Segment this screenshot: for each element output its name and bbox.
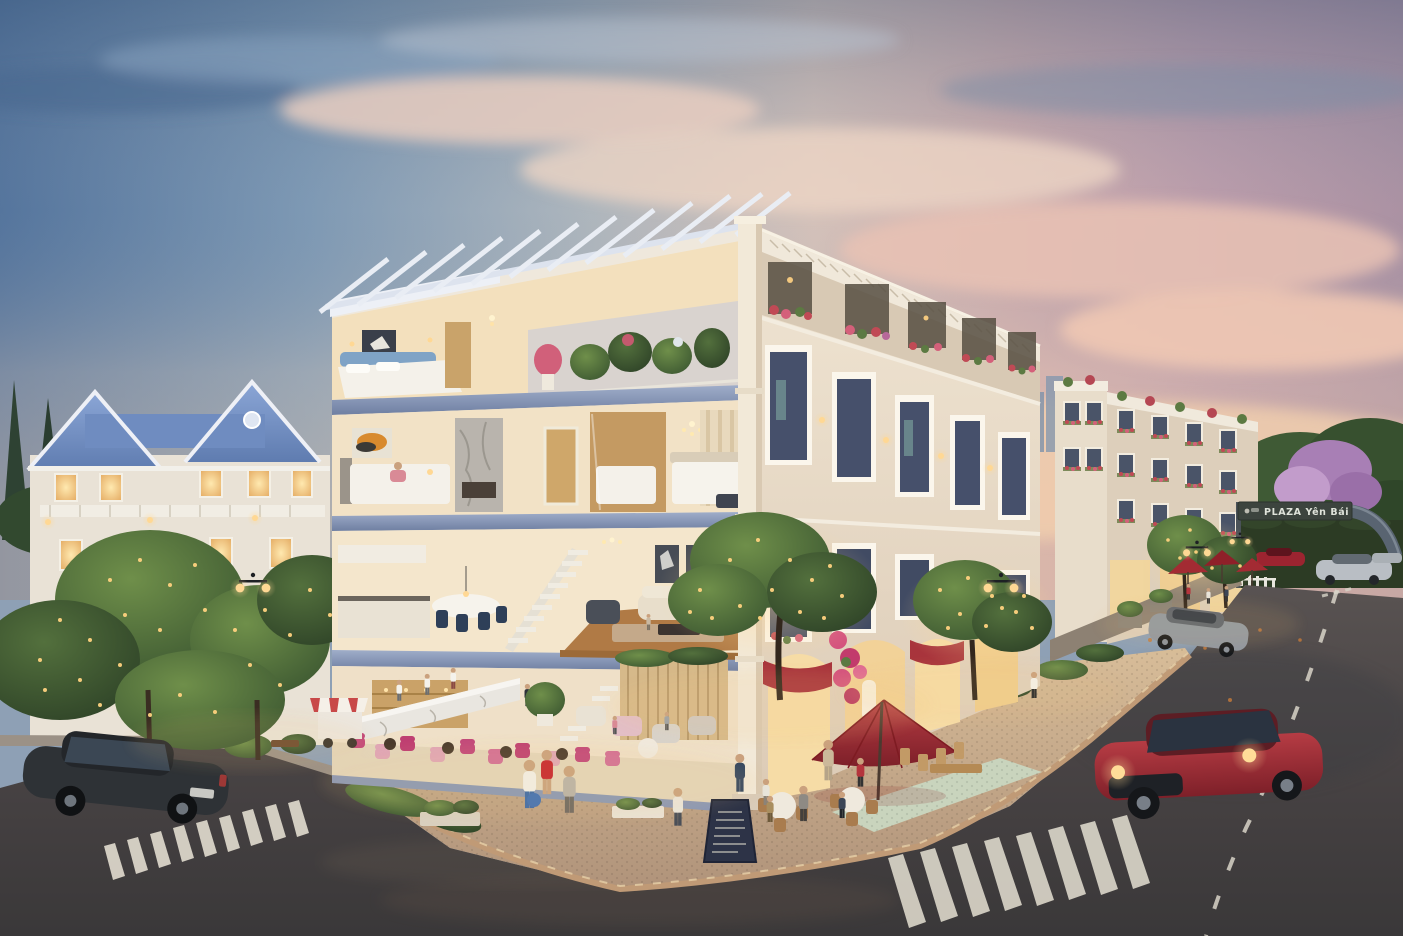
architectural-render: PLAZA Yên Bái	[0, 0, 1403, 936]
sign-logo-mark	[1245, 509, 1250, 514]
chalkboard-menu	[704, 800, 756, 862]
floor-3-bedrooms	[332, 400, 745, 516]
gateway-sign-text: PLAZA Yên Bái	[1264, 507, 1349, 518]
scene: PLAZA Yên Bái	[0, 0, 1403, 936]
